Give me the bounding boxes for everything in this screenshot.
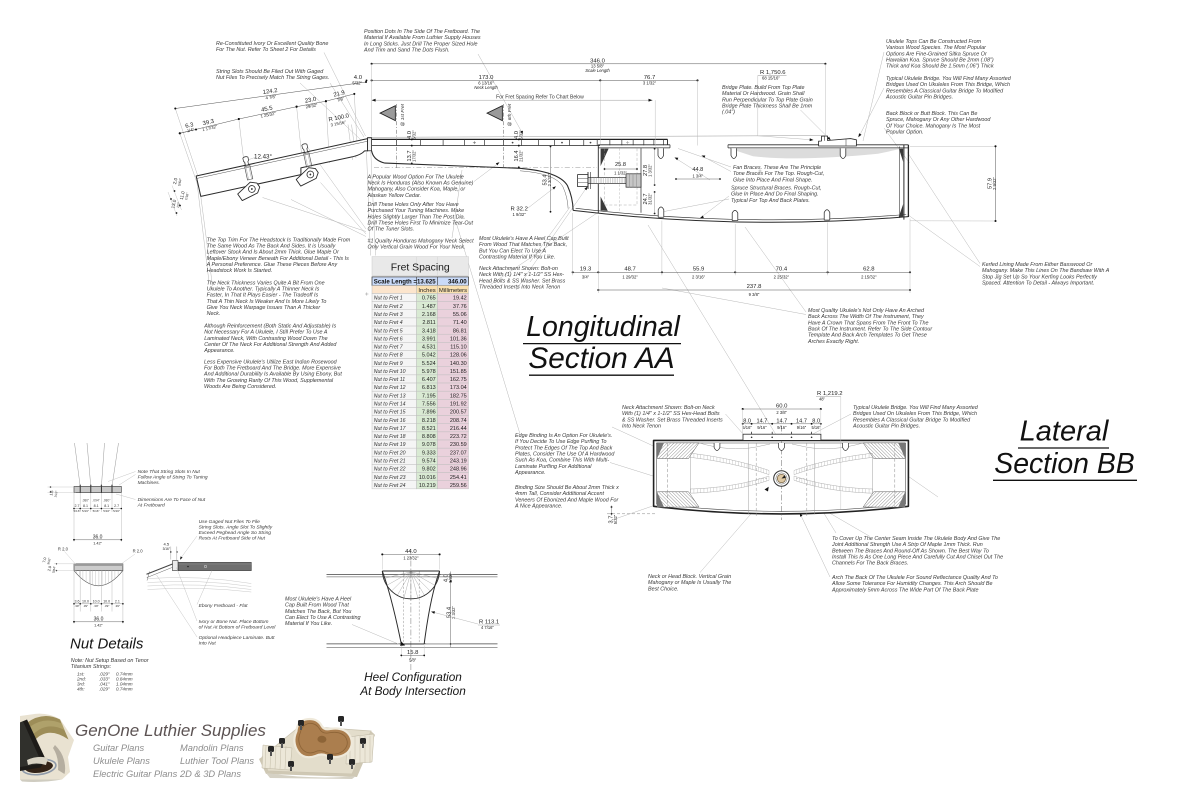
svg-text:8.521: 8.521 — [422, 426, 436, 432]
svg-text:1 9/32": 1 9/32" — [513, 212, 527, 217]
svg-text:5/16": 5/16" — [811, 425, 821, 430]
svg-text:#1 Quality Honduras Mahogany N: #1 Quality Honduras Mahogany Neck Select… — [368, 239, 475, 251]
svg-text:.39": .39" — [74, 604, 79, 608]
svg-text:2 3/32": 2 3/32" — [547, 173, 552, 186]
svg-text:2 3/8": 2 3/8" — [776, 410, 787, 415]
svg-text:13.625: 13.625 — [417, 278, 436, 285]
svg-text:5.524: 5.524 — [422, 361, 436, 367]
svg-text:Nut to Fret 2: Nut to Fret 2 — [374, 304, 403, 310]
svg-text:237.8: 237.8 — [747, 284, 762, 290]
svg-text:216.44: 216.44 — [450, 426, 467, 432]
svg-text:5/16": 5/16" — [82, 509, 89, 513]
svg-text:1.487: 1.487 — [422, 304, 436, 310]
svg-text:Spruce Structural Braces. Roug: Spruce Structural Braces. Rough-Cut,Glue… — [731, 186, 821, 204]
svg-text:346.00: 346.00 — [448, 278, 467, 285]
svg-text:2 25/32": 2 25/32" — [774, 275, 790, 280]
svg-text:2 15/32": 2 15/32" — [861, 275, 877, 280]
svg-text:9.078: 9.078 — [422, 442, 436, 448]
svg-text:5/16": 5/16" — [103, 509, 110, 513]
svg-text:9.574: 9.574 — [422, 459, 436, 465]
svg-text:25.8: 25.8 — [615, 162, 626, 168]
svg-text:1 3/32": 1 3/32" — [648, 164, 653, 177]
svg-text:243.19: 243.19 — [450, 459, 467, 465]
svg-text:String Slots Should Be Filed O: String Slots Should Be Filed Out With Ga… — [216, 69, 329, 81]
svg-text:Nut to Fret 12: Nut to Fret 12 — [374, 385, 406, 391]
svg-text:Nut Details: Nut Details — [70, 635, 144, 652]
svg-text:14.7: 14.7 — [796, 418, 807, 424]
svg-text:Kerfed Lining Made From Either: Kerfed Lining Made From Either Basswood … — [982, 262, 1110, 286]
svg-text:9.802: 9.802 — [422, 467, 436, 473]
svg-text:191.92: 191.92 — [450, 402, 467, 408]
svg-text:.080": .080" — [103, 499, 110, 503]
svg-text:115.10: 115.10 — [450, 345, 466, 351]
svg-text:21/32": 21/32" — [518, 150, 523, 162]
svg-text:2.7: 2.7 — [75, 504, 80, 508]
svg-text:8.218: 8.218 — [422, 418, 436, 424]
svg-text:2D & 3D Plans: 2D & 3D Plans — [179, 769, 241, 779]
svg-text:5.042: 5.042 — [422, 353, 436, 359]
svg-text:8.0: 8.0 — [743, 418, 751, 424]
svg-text:Re-Constituted Ivory Or Excell: Re-Constituted Ivory Or Excellent Qualit… — [216, 41, 328, 53]
svg-text:68 15/16": 68 15/16" — [762, 75, 780, 80]
svg-text:Neck Attachment Shown: Bolt-on: Neck Attachment Shown: Bolt-onNeck With … — [479, 266, 566, 290]
svg-text:6.813: 6.813 — [422, 385, 436, 391]
svg-text:1.42": 1.42" — [94, 624, 103, 628]
svg-text:10.0: 10.0 — [103, 599, 110, 603]
svg-text:10.0: 10.0 — [93, 599, 100, 603]
svg-text:48": 48" — [819, 396, 826, 401]
svg-text:2.1: 2.1 — [115, 599, 120, 603]
svg-text:R 2.0: R 2.0 — [58, 547, 69, 552]
svg-text:182.75: 182.75 — [450, 393, 467, 399]
svg-text:GenOne Luthier Supplies: GenOne Luthier Supplies — [75, 721, 266, 740]
svg-text:Nut to Fret 3: Nut to Fret 3 — [374, 312, 403, 318]
svg-text:3.991: 3.991 — [422, 336, 436, 342]
svg-text:151.85: 151.85 — [450, 369, 467, 375]
svg-text:5/32": 5/32" — [411, 130, 416, 140]
svg-text:70.4: 70.4 — [776, 267, 788, 273]
svg-text:Section BB: Section BB — [994, 448, 1134, 480]
svg-text:5.978: 5.978 — [422, 369, 436, 375]
svg-text:12.43°: 12.43° — [254, 154, 272, 161]
svg-text:Nut to Fret 23: Nut to Fret 23 — [374, 475, 406, 481]
svg-text:Scale Length =: Scale Length = — [374, 278, 418, 285]
svg-text:237.07: 237.07 — [450, 450, 467, 456]
svg-text:2.168: 2.168 — [422, 312, 436, 318]
svg-text:Nut to Fret 20: Nut to Fret 20 — [374, 450, 406, 456]
svg-text:162.75: 162.75 — [450, 377, 467, 383]
svg-text:9/16": 9/16" — [777, 425, 787, 430]
svg-text:@ 6th Fret: @ 6th Fret — [507, 103, 513, 126]
svg-text:4 7/16": 4 7/16" — [481, 625, 494, 630]
svg-text:36.0: 36.0 — [94, 616, 104, 622]
svg-text:Longitudinal: Longitudinal — [526, 311, 680, 343]
svg-text:Inches: Inches — [418, 288, 435, 294]
svg-text:128.06: 128.06 — [450, 353, 467, 359]
svg-text:19.42: 19.42 — [453, 296, 467, 302]
svg-text:5/16": 5/16" — [742, 425, 752, 430]
svg-text:5/32": 5/32" — [518, 130, 523, 140]
svg-text:Lateral: Lateral — [1020, 416, 1110, 448]
svg-text:1 23/32": 1 23/32" — [403, 556, 419, 561]
svg-text:.39": .39" — [83, 604, 88, 608]
svg-text:5/16": 5/16" — [93, 509, 100, 513]
svg-text:0.765: 0.765 — [422, 296, 436, 302]
svg-text:5/8": 5/8" — [409, 657, 417, 662]
svg-text:254.41: 254.41 — [450, 475, 467, 481]
svg-text:Nut to Fret 18: Nut to Fret 18 — [374, 434, 406, 440]
svg-text:86.81: 86.81 — [453, 328, 467, 334]
svg-text:9/16": 9/16" — [797, 425, 807, 430]
svg-text:62.8: 62.8 — [863, 267, 875, 273]
svg-text:101.36: 101.36 — [450, 336, 467, 342]
svg-text:3 1/32": 3 1/32" — [643, 80, 657, 85]
svg-text:9/16": 9/16" — [757, 425, 767, 430]
svg-text:R 2.0: R 2.0 — [133, 549, 144, 554]
svg-text:Arch The Back Of The Ukulele F: Arch The Back Of The Ukulele For Sound R… — [831, 575, 998, 593]
svg-text:Nut to Fret 6: Nut to Fret 6 — [374, 336, 403, 342]
svg-text:4.531: 4.531 — [422, 345, 436, 351]
svg-text:Ebony Fretboard - Flat: Ebony Fretboard - Flat — [199, 603, 249, 609]
svg-text:3/16": 3/16" — [163, 547, 170, 551]
svg-text:9 3/8": 9 3/8" — [749, 292, 760, 297]
svg-text:5/32": 5/32" — [352, 80, 362, 85]
svg-text:6.407: 6.407 — [422, 377, 436, 383]
svg-text:Guitar Plans: Guitar Plans — [93, 743, 145, 753]
svg-text:10.016: 10.016 — [419, 475, 436, 481]
svg-text:Nut to Fret 19: Nut to Fret 19 — [374, 442, 406, 448]
svg-text:Nut to Fret 7: Nut to Fret 7 — [374, 345, 404, 351]
svg-text:7.195: 7.195 — [422, 393, 436, 399]
svg-text:0.74mm: 0.74mm — [116, 687, 133, 692]
svg-text:48.7: 48.7 — [624, 267, 635, 273]
svg-text:2 9/32": 2 9/32" — [992, 177, 997, 190]
svg-text:@ 1st Fret: @ 1st Fret — [400, 103, 406, 126]
svg-text:173.04: 173.04 — [450, 385, 467, 391]
svg-text:Fan Braces. These Are The Prin: Fan Braces. These Are The PrincipleTone … — [733, 165, 824, 183]
svg-text:7.896: 7.896 — [422, 410, 436, 416]
svg-text:Fret Spacing: Fret Spacing — [391, 262, 450, 273]
svg-text:8.1: 8.1 — [83, 504, 88, 508]
svg-text:Ukulele Plans: Ukulele Plans — [93, 756, 150, 766]
svg-text:Nut to Fret 11: Nut to Fret 11 — [374, 377, 405, 383]
svg-text:Heel Configuration: Heel Configuration — [364, 670, 462, 684]
svg-text:Electric Guitar Plans: Electric Guitar Plans — [93, 769, 178, 779]
svg-text:2 3/16": 2 3/16" — [692, 275, 706, 280]
svg-text:.080": .080" — [82, 499, 89, 503]
svg-text:5/32": 5/32" — [613, 514, 618, 524]
svg-text:8.808: 8.808 — [422, 434, 436, 440]
svg-text:Section AA: Section AA — [528, 342, 674, 375]
svg-text:7.556: 7.556 — [422, 402, 436, 408]
svg-text:.094": .094" — [92, 499, 99, 503]
svg-text:248.96: 248.96 — [450, 467, 467, 473]
svg-text:5/16": 5/16" — [74, 509, 81, 513]
svg-text:Nut to Fret 15: Nut to Fret 15 — [374, 410, 406, 416]
svg-text:.39": .39" — [115, 604, 120, 608]
svg-text:.39": .39" — [93, 604, 98, 608]
svg-text:Ivory or Bone Nut. Place Botto: Ivory or Bone Nut. Place Bottomof Nut At… — [199, 619, 277, 631]
svg-text:.029": .029" — [99, 687, 110, 692]
svg-text:.39": .39" — [104, 604, 109, 608]
svg-text:55.06: 55.06 — [453, 312, 467, 318]
svg-text:9.333: 9.333 — [422, 450, 436, 456]
svg-text:44.8: 44.8 — [692, 167, 703, 173]
svg-text:At Body Intersection: At Body Intersection — [359, 684, 466, 698]
svg-text:17/32": 17/32" — [411, 150, 416, 162]
svg-text:140.30: 140.30 — [450, 361, 467, 367]
svg-text:Mandolin Plans: Mandolin Plans — [180, 743, 244, 753]
svg-text:10.219: 10.219 — [419, 483, 436, 489]
svg-text:Neck Length: Neck Length — [474, 85, 498, 90]
svg-text:Ukulele Tops Can Be Constructe: Ukulele Tops Can Be Constructed FromVari… — [886, 39, 994, 70]
svg-text:Nut to Fret 14: Nut to Fret 14 — [374, 402, 406, 408]
svg-text:19.3: 19.3 — [580, 267, 592, 273]
svg-text:Nut to Fret 16: Nut to Fret 16 — [374, 418, 406, 424]
svg-text:5/16": 5/16" — [113, 509, 120, 513]
svg-text:For Fret Spacing Refer To Char: For Fret Spacing Refer To Chart Below — [496, 94, 584, 100]
svg-text:4.5: 4.5 — [164, 542, 170, 547]
svg-text:10.0: 10.0 — [82, 599, 89, 603]
svg-text:Nut to Fret 17: Nut to Fret 17 — [374, 426, 407, 432]
svg-text:1 3/4": 1 3/4" — [693, 174, 704, 179]
svg-text:8.0: 8.0 — [812, 418, 820, 424]
svg-text:55.9: 55.9 — [693, 267, 704, 273]
svg-text:Nut to Fret 1: Nut to Fret 1 — [374, 296, 403, 302]
svg-text:Nut to Fret 9: Nut to Fret 9 — [374, 361, 403, 367]
svg-text:37.76: 37.76 — [453, 304, 467, 310]
svg-text:14.7: 14.7 — [756, 418, 767, 424]
svg-text:1 29/32": 1 29/32" — [622, 275, 638, 280]
svg-text:4th:: 4th: — [77, 687, 85, 692]
svg-text:3/4": 3/4" — [582, 275, 590, 280]
svg-text:36.0: 36.0 — [93, 534, 103, 540]
svg-text:208.74: 208.74 — [450, 418, 467, 424]
svg-text:223.72: 223.72 — [450, 434, 467, 440]
svg-text:2.811: 2.811 — [422, 320, 435, 326]
svg-text:Millimeters: Millimeters — [439, 288, 467, 294]
svg-text:Nut to Fret 4: Nut to Fret 4 — [374, 320, 403, 326]
svg-text:3.6: 3.6 — [75, 599, 80, 603]
svg-text:200.57: 200.57 — [450, 410, 467, 416]
svg-text:259.56: 259.56 — [450, 483, 467, 489]
svg-text:Scale Length: Scale Length — [585, 68, 610, 73]
svg-text:2.7: 2.7 — [114, 504, 119, 508]
svg-text:3.418: 3.418 — [422, 328, 436, 334]
svg-text:14.7: 14.7 — [776, 418, 787, 424]
svg-text:15.8: 15.8 — [407, 650, 419, 656]
svg-text:Nut to Fret 24: Nut to Fret 24 — [374, 483, 406, 489]
svg-text:Luthier Tool Plans: Luthier Tool Plans — [180, 756, 254, 766]
svg-text:31/32": 31/32" — [648, 193, 653, 205]
svg-text:230.59: 230.59 — [450, 442, 467, 448]
svg-text:Nut to Fret 5: Nut to Fret 5 — [374, 328, 403, 334]
svg-text:60.0: 60.0 — [776, 404, 788, 410]
svg-text:Nut to Fret 10: Nut to Fret 10 — [374, 369, 406, 375]
svg-text:Nut to Fret 8: Nut to Fret 8 — [374, 353, 403, 359]
svg-text:1 1/32": 1 1/32" — [614, 171, 627, 176]
svg-text:8.1: 8.1 — [94, 504, 99, 508]
svg-text:Nut to Fret 13: Nut to Fret 13 — [374, 393, 406, 399]
svg-text:1.42": 1.42" — [93, 542, 102, 546]
svg-text:71.40: 71.40 — [453, 320, 467, 326]
svg-text:8.1: 8.1 — [104, 504, 109, 508]
svg-text:Nut to Fret 21: Nut to Fret 21 — [374, 459, 406, 465]
svg-text:44.0: 44.0 — [405, 549, 417, 555]
svg-text:Nut to Fret 22: Nut to Fret 22 — [374, 467, 406, 473]
